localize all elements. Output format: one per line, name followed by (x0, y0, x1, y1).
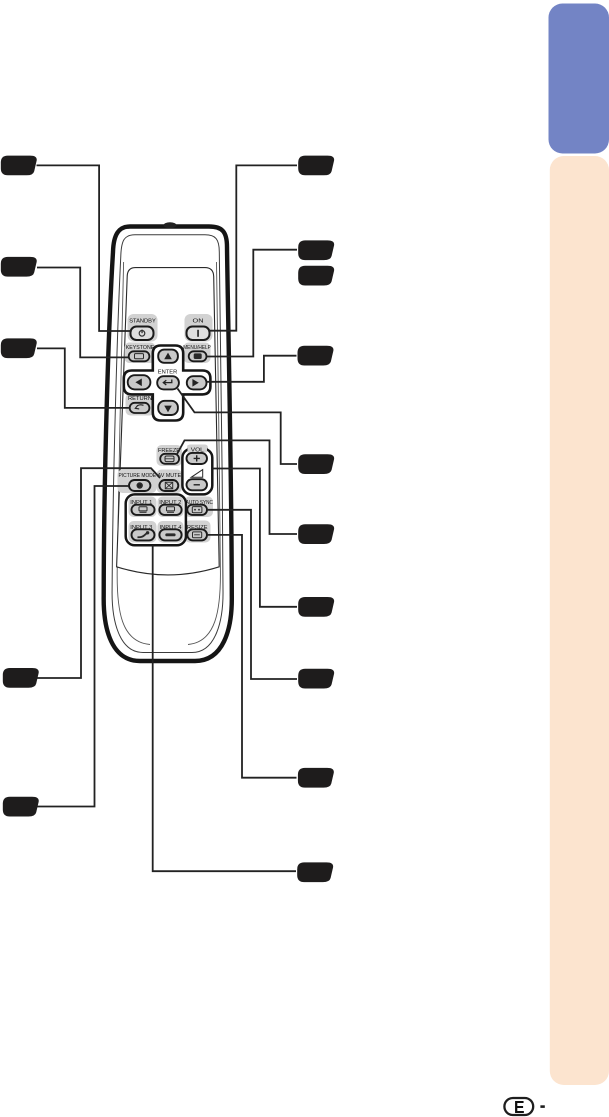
svg-text:PICTURE MODE: PICTURE MODE (119, 473, 157, 479)
svg-text:AV MUTE: AV MUTE (158, 473, 182, 479)
svg-text:MENU/HELP: MENU/HELP (183, 345, 211, 351)
svg-text:P: P (138, 483, 141, 488)
svg-text:RETURN: RETURN (128, 396, 152, 402)
svg-text:STANDBY: STANDBY (129, 318, 156, 324)
svg-text:ENTER: ENTER (158, 370, 178, 376)
svg-text:ON: ON (193, 318, 204, 324)
svg-text:E: E (514, 1097, 525, 1117)
svg-text:KEYSTONE: KEYSTONE (126, 345, 155, 351)
